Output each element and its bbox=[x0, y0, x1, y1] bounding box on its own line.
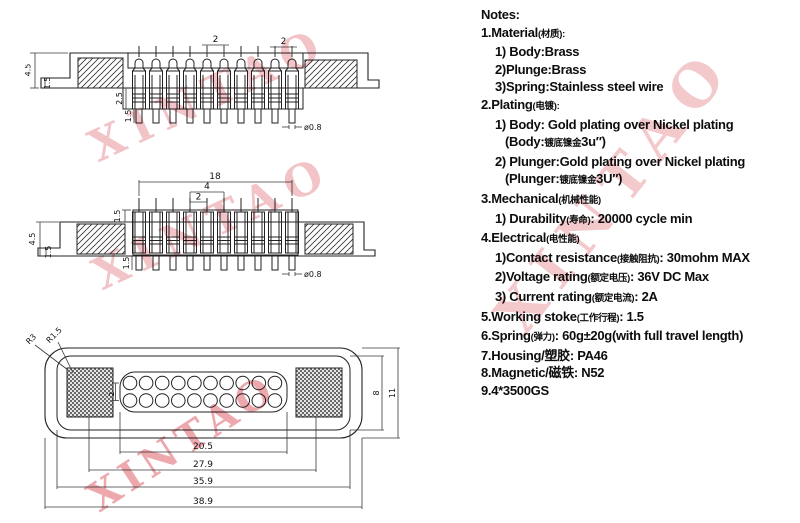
note-text: 3) Current rating bbox=[495, 289, 592, 304]
pin-contact-circle bbox=[188, 394, 202, 408]
pin-shape bbox=[255, 256, 261, 270]
note-text: 2) Plunger:Gold plating over Nickel plat… bbox=[495, 154, 745, 169]
pin-shape bbox=[218, 212, 231, 253]
pin-contact-circle bbox=[139, 394, 153, 408]
pin-shape bbox=[272, 256, 278, 270]
magnet-left-section bbox=[78, 58, 123, 88]
note-text: 1) Durability bbox=[495, 211, 566, 226]
pogo-pins-compressed bbox=[133, 198, 299, 270]
pin-contact-circle bbox=[188, 376, 202, 390]
note-text: 9.4*3500GS bbox=[481, 383, 549, 398]
pin-shape bbox=[133, 71, 146, 109]
note-cn-text: (机械性能) bbox=[558, 195, 601, 206]
pin-shape bbox=[272, 109, 278, 123]
dim-label: 1.5 bbox=[44, 246, 53, 259]
note-line: Notes: bbox=[481, 6, 800, 24]
pin-shape bbox=[221, 256, 227, 270]
dim-label: ø0.8 bbox=[304, 270, 322, 279]
note-line: 2.Plating(电镀): bbox=[481, 96, 800, 116]
pin-shape bbox=[135, 59, 143, 68]
note-cn-text: 镀底镍金 bbox=[544, 138, 581, 149]
pin-shape bbox=[252, 71, 265, 109]
note-text: : 30mohm MAX bbox=[659, 250, 749, 265]
pin-contact-circle bbox=[220, 394, 234, 408]
dim-label: 4 bbox=[204, 182, 210, 192]
dim-label: 1.5 bbox=[124, 110, 133, 123]
pin-shape bbox=[269, 212, 282, 253]
pin-shape bbox=[235, 71, 248, 109]
dim-label: 2 bbox=[196, 193, 202, 203]
note-line: 3) Current rating(额定电流): 2A bbox=[481, 288, 800, 308]
note-line: 1) Durability(寿命): 20000 cycle min bbox=[481, 210, 800, 230]
note-text: 2)Plunge:Brass bbox=[495, 62, 586, 77]
note-text: 1.Material bbox=[481, 25, 538, 40]
pin-contact-circle bbox=[204, 394, 218, 408]
pin-shape bbox=[203, 59, 211, 68]
drawing-side-view-compressed: 18 4 2 1.5 4.5 1.5 1.5 ø0.8 bbox=[25, 165, 385, 283]
pin-shape bbox=[289, 256, 295, 270]
pin-shape bbox=[289, 109, 295, 123]
pin-contact-circle bbox=[172, 394, 186, 408]
dim-label: 8 bbox=[372, 390, 381, 395]
pin-contact-circle bbox=[155, 394, 169, 408]
pin-contact-circle bbox=[204, 376, 218, 390]
pin-shape bbox=[150, 71, 163, 109]
dim-label: 2 bbox=[281, 37, 287, 47]
note-cn-text: (寿命) bbox=[566, 215, 590, 226]
magnet-right-section bbox=[305, 60, 357, 88]
pin-shape bbox=[170, 109, 176, 123]
note-cn-text: (材质): bbox=[538, 29, 565, 40]
pin-shape bbox=[221, 109, 227, 123]
dim-label: 1.5 bbox=[113, 210, 122, 223]
pin-slot-edge bbox=[128, 53, 303, 68]
pin-contact-circle bbox=[236, 376, 250, 390]
pin-shape bbox=[186, 59, 194, 68]
pin-shape bbox=[150, 212, 163, 253]
note-line: 8.Magnetic/磁铁: N52 bbox=[481, 364, 800, 382]
note-cn-text: (额定电压) bbox=[587, 273, 630, 284]
pin-contact-circle bbox=[155, 376, 169, 390]
note-text: : 2A bbox=[634, 289, 657, 304]
pin-contact-circle bbox=[252, 394, 266, 408]
dim-label: 35.9 bbox=[193, 477, 213, 487]
pin-shape bbox=[167, 71, 180, 109]
dim-label: 2.5 bbox=[115, 92, 124, 105]
magnet-left bbox=[67, 368, 113, 417]
note-text: 3.Mechanical bbox=[481, 191, 558, 206]
pin-shape bbox=[152, 59, 160, 68]
page: { "watermark": { "text": "XINTAO" }, "no… bbox=[0, 0, 800, 523]
note-text: 3U″) bbox=[596, 171, 622, 186]
note-cn-text: (接触阻抗) bbox=[617, 254, 660, 265]
pin-shape bbox=[201, 71, 214, 109]
pin-contact-circle bbox=[123, 376, 137, 390]
drawing-top-view: R3 R1.5 2 20.5 27.9 35.9 38.9 8 11 bbox=[25, 315, 415, 515]
pin-shape bbox=[184, 71, 197, 109]
note-line: (Plunger:镀底镍金3U″) bbox=[481, 170, 800, 190]
pin-shape bbox=[136, 256, 142, 270]
pin-shape bbox=[201, 212, 214, 253]
note-text: : 36V DC Max bbox=[630, 269, 709, 284]
drawing-side-view-extended: 2 2 4.5 1.5 2.5 1.5 ø0.8 bbox=[25, 30, 385, 142]
note-text: 8.Magnetic/磁铁: N52 bbox=[481, 365, 604, 380]
dim-label: 1.5 bbox=[43, 77, 52, 90]
note-line: 1)Contact resistance(接触阻抗): 30mohm MAX bbox=[481, 249, 800, 269]
dim-label: 18 bbox=[209, 172, 221, 182]
pin-shape bbox=[286, 212, 299, 253]
dim-label: 27.9 bbox=[193, 460, 213, 470]
note-cn-text: (工作行程) bbox=[577, 313, 620, 324]
dim-label: 38.9 bbox=[193, 497, 213, 507]
note-text: 1) Body:Brass bbox=[495, 44, 579, 59]
note-text: (Plunger: bbox=[505, 171, 559, 186]
note-line: 1) Body: Gold plating over Nickel platin… bbox=[481, 116, 800, 134]
dim-label: 2 bbox=[108, 392, 116, 396]
pin-shape bbox=[153, 256, 159, 270]
note-text: 4.Electrical bbox=[481, 230, 546, 245]
note-text: : 1.5 bbox=[619, 309, 644, 324]
note-cn-text: (电性能) bbox=[546, 234, 579, 245]
note-line: 2)Voltage rating(额定电压): 36V DC Max bbox=[481, 268, 800, 288]
pin-shape bbox=[237, 59, 245, 68]
note-text: 5.Working stoke bbox=[481, 309, 577, 324]
note-cn-text: (电镀): bbox=[532, 101, 559, 112]
pin-shape bbox=[187, 256, 193, 270]
note-text: 6.Spring bbox=[481, 328, 531, 343]
dim-label: 4.5 bbox=[25, 64, 33, 77]
pin-shape bbox=[254, 59, 262, 68]
note-cn-text: 镀底镍金 bbox=[559, 175, 596, 186]
note-cn-text: (额定电流) bbox=[592, 293, 635, 304]
note-line: 5.Working stoke(工作行程): 1.5 bbox=[481, 308, 800, 328]
dim-label: ø0.8 bbox=[304, 123, 322, 132]
note-line: 3)Spring:Stainless steel wire bbox=[481, 78, 800, 96]
pin-shape bbox=[167, 212, 180, 253]
pin-housing-block bbox=[133, 210, 298, 255]
pin-contact-circle bbox=[139, 376, 153, 390]
dim-label: 4.5 bbox=[28, 233, 37, 246]
magnet-right bbox=[296, 368, 342, 417]
note-line: 9.4*3500GS bbox=[481, 382, 800, 400]
pin-shape bbox=[169, 59, 177, 68]
pin-contact-circle bbox=[123, 394, 137, 408]
pin-shape bbox=[204, 256, 210, 270]
pin-shape bbox=[271, 59, 279, 68]
pin-shape bbox=[136, 109, 142, 123]
pin-shape bbox=[204, 109, 210, 123]
pin-shape bbox=[220, 59, 228, 68]
note-text: 3u″) bbox=[581, 134, 606, 149]
note-text: : 20000 cycle min bbox=[590, 211, 692, 226]
note-text: 2.Plating bbox=[481, 97, 532, 112]
pin-shape bbox=[218, 71, 231, 109]
note-line: 2)Plunge:Brass bbox=[481, 61, 800, 79]
pin-contact-circle bbox=[252, 376, 266, 390]
dim-label: R1.5 bbox=[45, 326, 64, 345]
note-line: 1.Material(材质): bbox=[481, 24, 800, 44]
note-line: 3.Mechanical(机械性能) bbox=[481, 190, 800, 210]
pin-shape bbox=[269, 71, 282, 109]
note-text: Notes: bbox=[481, 7, 520, 22]
magnet-left-section bbox=[77, 224, 125, 254]
dim-label: 2 bbox=[213, 35, 219, 45]
note-text: : 60g±20g bbox=[555, 328, 612, 343]
note-text: (Body: bbox=[505, 134, 544, 149]
magnet-right-section bbox=[305, 224, 353, 254]
pin-contact-circle bbox=[268, 376, 282, 390]
note-line: 1) Body:Brass bbox=[481, 43, 800, 61]
pin-shape bbox=[288, 59, 296, 68]
pin-shape bbox=[184, 212, 197, 253]
pin-shape bbox=[133, 212, 146, 253]
note-text: 1) Body: Gold plating over Nickel platin… bbox=[495, 117, 733, 132]
pin-shape bbox=[286, 71, 299, 109]
pin-contact-circle bbox=[236, 394, 250, 408]
pin-shape bbox=[235, 212, 248, 253]
note-line: (Body:镀底镍金3u″) bbox=[481, 133, 800, 153]
pin-shape bbox=[252, 212, 265, 253]
note-line: 6.Spring(弹力): 60g±20g(with full travel l… bbox=[481, 327, 800, 347]
pin-shape bbox=[238, 109, 244, 123]
pin-contacts bbox=[123, 376, 281, 407]
note-text: 3)Spring:Stainless steel wire bbox=[495, 79, 663, 94]
pin-shape bbox=[170, 256, 176, 270]
pogo-pins-extended bbox=[133, 46, 299, 123]
pin-shape bbox=[238, 256, 244, 270]
note-text: (with full travel length) bbox=[612, 328, 743, 343]
pin-shape bbox=[187, 109, 193, 123]
note-line: 4.Electrical(电性能) bbox=[481, 229, 800, 249]
dim-label: 20.5 bbox=[193, 442, 213, 452]
pin-contact-circle bbox=[172, 376, 186, 390]
note-text: 7.Housing/塑胶: PA46 bbox=[481, 348, 608, 363]
dim-label: 1.5 bbox=[122, 257, 131, 270]
pin-contact-circle bbox=[268, 394, 282, 408]
note-line: 7.Housing/塑胶: PA46 bbox=[481, 347, 800, 365]
pin-shape bbox=[153, 109, 159, 123]
dim-label: 11 bbox=[388, 388, 397, 398]
note-text: 2)Voltage rating bbox=[495, 269, 587, 284]
pin-contact-circle bbox=[220, 376, 234, 390]
note-cn-text: (弹力) bbox=[531, 332, 555, 343]
dim-label: R3 bbox=[25, 332, 38, 346]
notes-panel: Notes:1.Material(材质):1) Body:Brass2)Plun… bbox=[481, 6, 800, 399]
pin-shape bbox=[255, 109, 261, 123]
note-text: 1)Contact resistance bbox=[495, 250, 617, 265]
note-line: 2) Plunger:Gold plating over Nickel plat… bbox=[481, 153, 800, 171]
